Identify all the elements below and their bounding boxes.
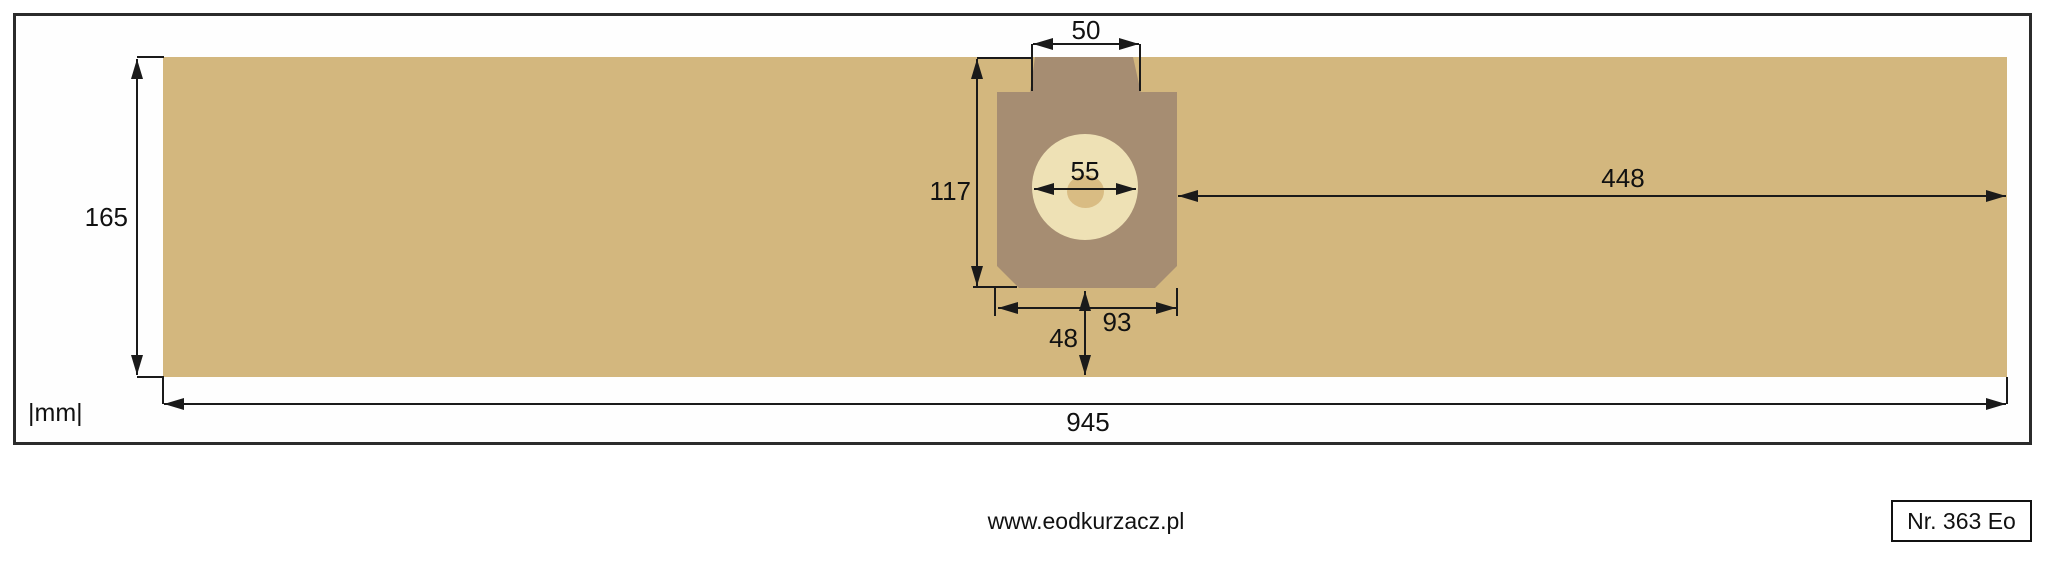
label-plate-width: 93 [1077,309,1157,335]
part-number-box: Nr. 363 Eo [1891,500,2032,542]
website-text: www.eodkurzacz.pl [936,508,1236,535]
label-hole-diameter: 55 [1045,158,1125,184]
drawing-page: 165 50 117 55 448 93 48 945 |mm| www.eod… [0,0,2048,584]
units-label: |mm| [28,399,83,428]
label-plate-to-bag-bottom: 48 [1020,325,1078,351]
label-plate-height: 117 [911,178,971,204]
label-bag-length: 945 [1038,409,1138,435]
label-bag-height: 165 [68,204,128,230]
label-plate-to-right-edge: 448 [1583,165,1663,191]
plate-collar [1030,57,1141,93]
part-number-text: Nr. 363 Eo [1907,508,2016,535]
label-collar-width: 50 [1046,17,1126,43]
